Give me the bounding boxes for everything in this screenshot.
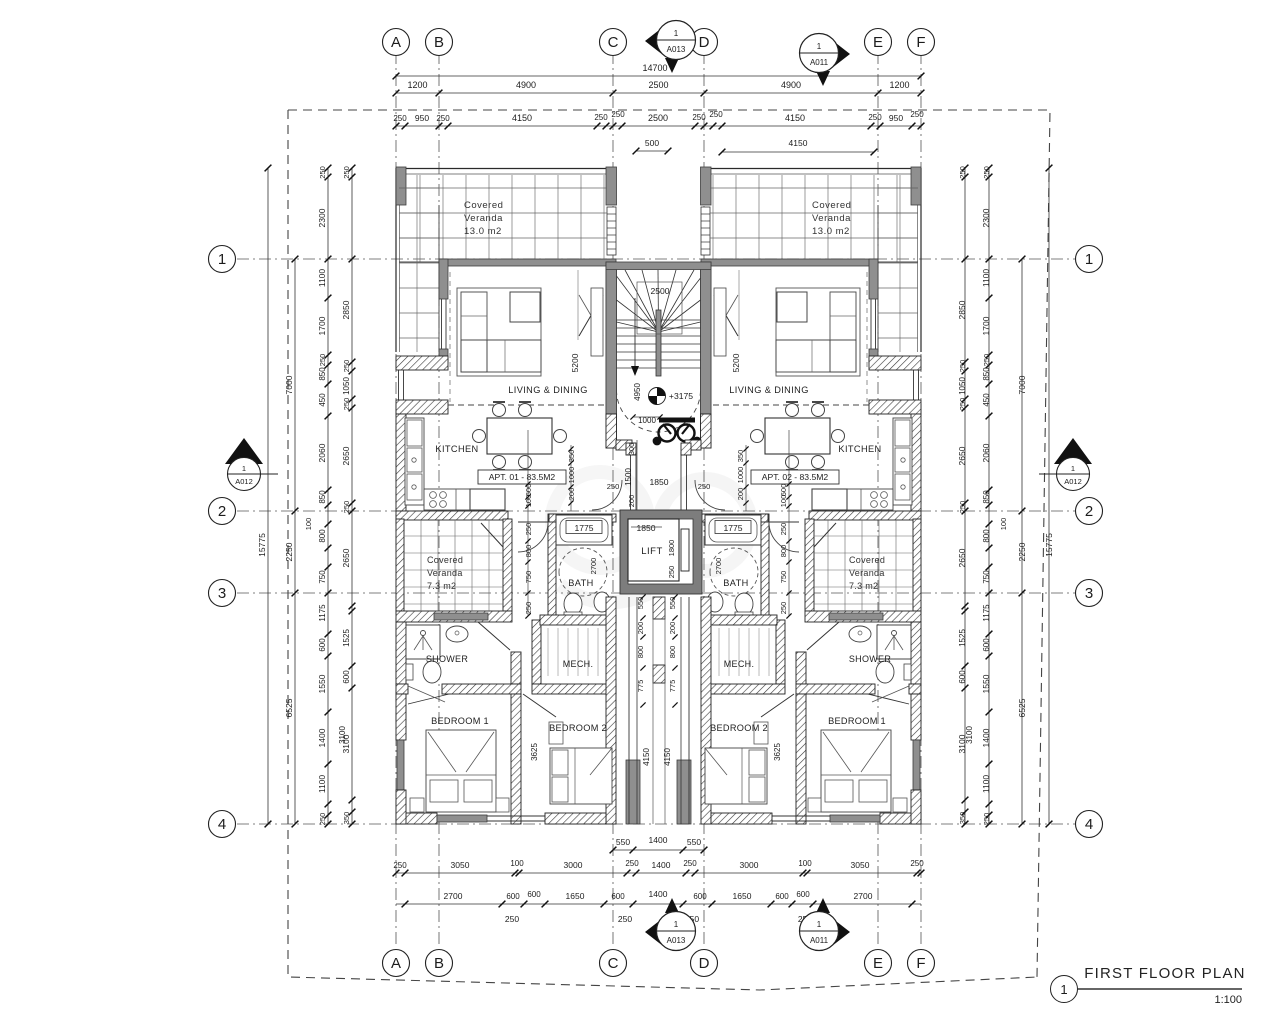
svg-text:1775: 1775 — [723, 523, 742, 533]
svg-text:250: 250 — [318, 354, 327, 367]
svg-text:350: 350 — [342, 812, 351, 825]
svg-text:LIFT: LIFT — [641, 546, 663, 557]
svg-text:1550: 1550 — [981, 674, 991, 693]
svg-text:250: 250 — [342, 360, 351, 373]
svg-text:2500: 2500 — [650, 286, 669, 296]
svg-text:1550: 1550 — [317, 674, 327, 693]
svg-text:1400: 1400 — [649, 835, 668, 845]
svg-text:6525: 6525 — [1017, 698, 1027, 717]
svg-text:2700: 2700 — [444, 891, 463, 901]
svg-text:250: 250 — [958, 360, 967, 373]
svg-text:2700: 2700 — [854, 891, 873, 901]
svg-text:1400: 1400 — [652, 860, 671, 870]
svg-text:750: 750 — [779, 571, 788, 584]
svg-text:1700: 1700 — [981, 316, 991, 335]
svg-text:1700: 1700 — [317, 316, 327, 335]
svg-text:B: B — [434, 34, 444, 51]
svg-text:1: 1 — [817, 42, 822, 51]
svg-text:850: 850 — [982, 367, 991, 381]
svg-text:13.0 m2: 13.0 m2 — [464, 226, 502, 237]
svg-text:250: 250 — [342, 166, 351, 179]
svg-text:4150: 4150 — [512, 113, 532, 123]
svg-text:3: 3 — [1085, 585, 1093, 602]
svg-text:350: 350 — [958, 812, 967, 825]
svg-text:4150: 4150 — [663, 748, 672, 766]
svg-text:100: 100 — [304, 518, 313, 531]
svg-text:250: 250 — [393, 861, 407, 870]
svg-text:1775: 1775 — [574, 523, 593, 533]
svg-text:1500: 1500 — [624, 468, 633, 486]
svg-text:2060: 2060 — [981, 443, 991, 462]
svg-text:1000: 1000 — [638, 416, 656, 425]
svg-text:F: F — [916, 34, 925, 51]
svg-text:3: 3 — [218, 585, 226, 602]
svg-text:2500: 2500 — [648, 113, 668, 123]
svg-text:2650: 2650 — [341, 446, 351, 465]
svg-text:100: 100 — [999, 518, 1008, 531]
svg-text:2300: 2300 — [317, 208, 327, 227]
svg-text:A013: A013 — [667, 936, 686, 945]
svg-text:13.0 m2: 13.0 m2 — [812, 226, 850, 237]
svg-text:MECH.: MECH. — [563, 659, 594, 669]
svg-text:Covered: Covered — [849, 555, 885, 565]
svg-text:Covered: Covered — [464, 200, 503, 211]
svg-text:850: 850 — [982, 490, 991, 504]
svg-text:E: E — [873, 34, 883, 51]
svg-text:4950: 4950 — [633, 383, 642, 401]
svg-text:250: 250 — [910, 110, 924, 119]
svg-text:950: 950 — [415, 113, 429, 123]
svg-text:1100: 1100 — [981, 269, 991, 288]
svg-text:1400: 1400 — [317, 728, 327, 747]
svg-text:FIRST FLOOR PLAN: FIRST FLOOR PLAN — [1084, 965, 1245, 982]
svg-text:250: 250 — [958, 398, 967, 411]
svg-text:2650: 2650 — [957, 446, 967, 465]
svg-text:250: 250 — [868, 113, 882, 122]
svg-text:C: C — [608, 955, 619, 972]
svg-text:3050: 3050 — [851, 860, 870, 870]
svg-text:3000: 3000 — [740, 860, 759, 870]
svg-text:Veranda: Veranda — [812, 213, 851, 224]
svg-text:800: 800 — [318, 529, 327, 543]
svg-text:300: 300 — [627, 443, 636, 456]
svg-text:15775: 15775 — [257, 533, 267, 557]
svg-text:Veranda: Veranda — [849, 568, 885, 578]
svg-text:800: 800 — [524, 545, 533, 558]
svg-text:1050: 1050 — [342, 377, 351, 395]
svg-text:600: 600 — [506, 892, 520, 901]
svg-text:600: 600 — [982, 638, 991, 652]
svg-text:5200: 5200 — [731, 353, 741, 372]
svg-text:1200: 1200 — [889, 80, 909, 90]
svg-text:1525: 1525 — [342, 629, 351, 647]
svg-text:1: 1 — [1071, 464, 1075, 473]
svg-text:550: 550 — [668, 597, 677, 610]
svg-text:550: 550 — [687, 837, 701, 847]
svg-text:7.3 m2: 7.3 m2 — [427, 581, 456, 591]
svg-text:2300: 2300 — [981, 208, 991, 227]
svg-text:BATH: BATH — [568, 578, 593, 588]
svg-text:200: 200 — [668, 622, 677, 635]
svg-text:250: 250 — [607, 482, 620, 491]
svg-text:3625: 3625 — [773, 743, 782, 761]
svg-text:D: D — [699, 955, 710, 972]
svg-text:3625: 3625 — [530, 743, 539, 761]
svg-text:600: 600 — [611, 892, 625, 901]
svg-text:550: 550 — [616, 837, 630, 847]
svg-text:1:100: 1:100 — [1214, 994, 1242, 1006]
svg-text:3100: 3100 — [338, 726, 347, 744]
svg-text:1: 1 — [817, 920, 822, 929]
svg-text:A: A — [391, 955, 401, 972]
svg-text:250: 250 — [342, 501, 351, 514]
svg-text:4900: 4900 — [781, 80, 801, 90]
svg-text:BEDROOM 1: BEDROOM 1 — [431, 716, 489, 726]
svg-text:250: 250 — [982, 354, 991, 367]
svg-text:250: 250 — [698, 482, 711, 491]
svg-text:250: 250 — [958, 501, 967, 514]
svg-text:200: 200 — [567, 488, 576, 501]
svg-text:1: 1 — [218, 251, 226, 268]
svg-text:BEDROOM 2: BEDROOM 2 — [710, 723, 768, 733]
svg-text:850: 850 — [318, 367, 327, 381]
svg-text:5200: 5200 — [570, 353, 580, 372]
svg-text:Covered: Covered — [812, 200, 851, 211]
svg-text:2500: 2500 — [648, 80, 668, 90]
svg-text:MECH.: MECH. — [724, 659, 755, 669]
svg-text:450: 450 — [982, 393, 991, 407]
svg-text:+3175: +3175 — [669, 391, 693, 401]
svg-text:A011: A011 — [810, 58, 829, 67]
svg-text:450: 450 — [318, 393, 327, 407]
svg-text:800: 800 — [982, 529, 991, 543]
svg-text:3050: 3050 — [451, 860, 470, 870]
svg-text:A013: A013 — [667, 45, 686, 54]
svg-text:250: 250 — [618, 914, 632, 924]
svg-text:4900: 4900 — [516, 80, 536, 90]
svg-text:250: 250 — [982, 813, 991, 826]
svg-text:2250: 2250 — [284, 542, 294, 561]
svg-text:2250: 2250 — [1017, 542, 1027, 561]
svg-text:2060: 2060 — [317, 443, 327, 462]
svg-text:250: 250 — [667, 566, 676, 579]
svg-text:1850: 1850 — [649, 477, 668, 487]
svg-text:1000: 1000 — [736, 467, 745, 484]
svg-text:600: 600 — [318, 638, 327, 652]
svg-text:550: 550 — [636, 597, 645, 610]
svg-text:4150: 4150 — [642, 748, 651, 766]
svg-text:250: 250 — [436, 114, 450, 123]
svg-text:1100: 1100 — [981, 775, 991, 794]
svg-text:775: 775 — [668, 680, 677, 693]
svg-text:SHOWER: SHOWER — [849, 654, 892, 664]
svg-text:1800: 1800 — [667, 540, 676, 557]
svg-text:1400: 1400 — [981, 728, 991, 747]
svg-text:750: 750 — [524, 571, 533, 584]
svg-text:250: 250 — [709, 110, 723, 119]
svg-text:250: 250 — [625, 859, 639, 868]
svg-text:775: 775 — [636, 680, 645, 693]
svg-text:250: 250 — [594, 113, 608, 122]
svg-text:Covered: Covered — [427, 555, 463, 565]
svg-text:600: 600 — [693, 892, 707, 901]
svg-text:250: 250 — [779, 602, 788, 615]
svg-text:1200: 1200 — [407, 80, 427, 90]
svg-text:1100: 1100 — [317, 269, 327, 288]
svg-text:1: 1 — [242, 464, 246, 473]
svg-text:3000: 3000 — [564, 860, 583, 870]
svg-text:1: 1 — [1060, 982, 1067, 997]
svg-text:200: 200 — [627, 495, 636, 508]
svg-text:1100: 1100 — [317, 775, 327, 794]
svg-text:A012: A012 — [1064, 477, 1082, 486]
svg-text:1175: 1175 — [318, 604, 327, 622]
svg-text:1650: 1650 — [566, 891, 585, 901]
svg-text:KITCHEN: KITCHEN — [838, 444, 881, 454]
svg-text:800: 800 — [668, 646, 677, 659]
svg-text:1525: 1525 — [958, 629, 967, 647]
svg-text:2850: 2850 — [957, 300, 967, 319]
svg-text:950: 950 — [889, 113, 903, 123]
svg-text:4: 4 — [218, 816, 226, 833]
svg-text:750: 750 — [318, 570, 327, 584]
svg-text:A012: A012 — [235, 477, 253, 486]
svg-text:2650: 2650 — [957, 548, 967, 567]
svg-text:7000: 7000 — [1017, 375, 1027, 394]
svg-text:500: 500 — [645, 138, 659, 148]
svg-text:100: 100 — [779, 495, 788, 508]
svg-text:350: 350 — [567, 450, 576, 463]
svg-text:15775: 15775 — [1044, 533, 1054, 557]
svg-text:7000: 7000 — [284, 375, 294, 394]
svg-text:600: 600 — [796, 890, 810, 899]
svg-text:2: 2 — [218, 503, 226, 520]
svg-text:Veranda: Veranda — [427, 568, 463, 578]
svg-text:2850: 2850 — [341, 300, 351, 319]
svg-text:LIVING & DINING: LIVING & DINING — [729, 385, 809, 395]
svg-text:KITCHEN: KITCHEN — [435, 444, 478, 454]
svg-text:E: E — [873, 955, 883, 972]
svg-text:4150: 4150 — [789, 138, 808, 148]
svg-text:1175: 1175 — [982, 604, 991, 622]
svg-text:1850: 1850 — [636, 523, 655, 533]
svg-text:LIVING & DINING: LIVING & DINING — [508, 385, 588, 395]
svg-text:600: 600 — [775, 892, 789, 901]
svg-text:250: 250 — [779, 523, 788, 536]
svg-text:1650: 1650 — [733, 891, 752, 901]
svg-text:250: 250 — [611, 110, 625, 119]
svg-text:D: D — [699, 34, 710, 51]
svg-text:250: 250 — [683, 859, 697, 868]
svg-text:A: A — [391, 34, 401, 51]
svg-text:250: 250 — [524, 523, 533, 536]
svg-text:600: 600 — [958, 670, 967, 684]
svg-text:250: 250 — [958, 166, 967, 179]
svg-text:B: B — [434, 955, 444, 972]
svg-text:2650: 2650 — [341, 548, 351, 567]
svg-text:800: 800 — [636, 646, 645, 659]
svg-text:600: 600 — [342, 670, 351, 684]
svg-text:APT. 02 - 83.5M2: APT. 02 - 83.5M2 — [762, 472, 829, 482]
svg-text:250: 250 — [318, 166, 327, 179]
svg-text:2: 2 — [1085, 503, 1093, 520]
svg-text:250: 250 — [982, 166, 991, 179]
svg-text:BEDROOM 2: BEDROOM 2 — [549, 723, 607, 733]
svg-text:4: 4 — [1085, 816, 1093, 833]
svg-text:800: 800 — [779, 545, 788, 558]
svg-text:250: 250 — [318, 813, 327, 826]
svg-text:1: 1 — [674, 29, 679, 38]
svg-text:250: 250 — [910, 859, 924, 868]
svg-text:14700: 14700 — [642, 63, 667, 73]
svg-text:200: 200 — [636, 622, 645, 635]
svg-text:600: 600 — [524, 484, 533, 497]
svg-text:APT. 01 - 83.5M2: APT. 01 - 83.5M2 — [489, 472, 556, 482]
svg-text:4150: 4150 — [785, 113, 805, 123]
svg-text:BEDROOM 1: BEDROOM 1 — [828, 716, 886, 726]
svg-text:6525: 6525 — [284, 698, 294, 717]
svg-text:250: 250 — [692, 113, 706, 122]
svg-text:7.3 m2: 7.3 m2 — [849, 581, 878, 591]
svg-text:100: 100 — [510, 859, 524, 868]
svg-text:BATH: BATH — [723, 578, 748, 588]
svg-text:F: F — [916, 955, 925, 972]
svg-text:100: 100 — [798, 859, 812, 868]
svg-text:1050: 1050 — [958, 377, 967, 395]
svg-text:600: 600 — [527, 890, 541, 899]
svg-text:850: 850 — [318, 490, 327, 504]
svg-text:Veranda: Veranda — [464, 213, 503, 224]
svg-text:3100: 3100 — [965, 726, 974, 744]
svg-text:1400: 1400 — [649, 889, 668, 899]
svg-text:2700: 2700 — [714, 558, 723, 575]
svg-text:250: 250 — [393, 114, 407, 123]
svg-text:C: C — [608, 34, 619, 51]
svg-text:250: 250 — [524, 602, 533, 615]
svg-text:1: 1 — [1085, 251, 1093, 268]
svg-text:1000: 1000 — [567, 467, 576, 484]
svg-text:SHOWER: SHOWER — [426, 654, 469, 664]
svg-text:1: 1 — [674, 920, 679, 929]
svg-text:750: 750 — [982, 570, 991, 584]
svg-text:250: 250 — [505, 914, 519, 924]
svg-text:250: 250 — [342, 398, 351, 411]
svg-text:2700: 2700 — [589, 558, 598, 575]
svg-text:A011: A011 — [810, 936, 829, 945]
